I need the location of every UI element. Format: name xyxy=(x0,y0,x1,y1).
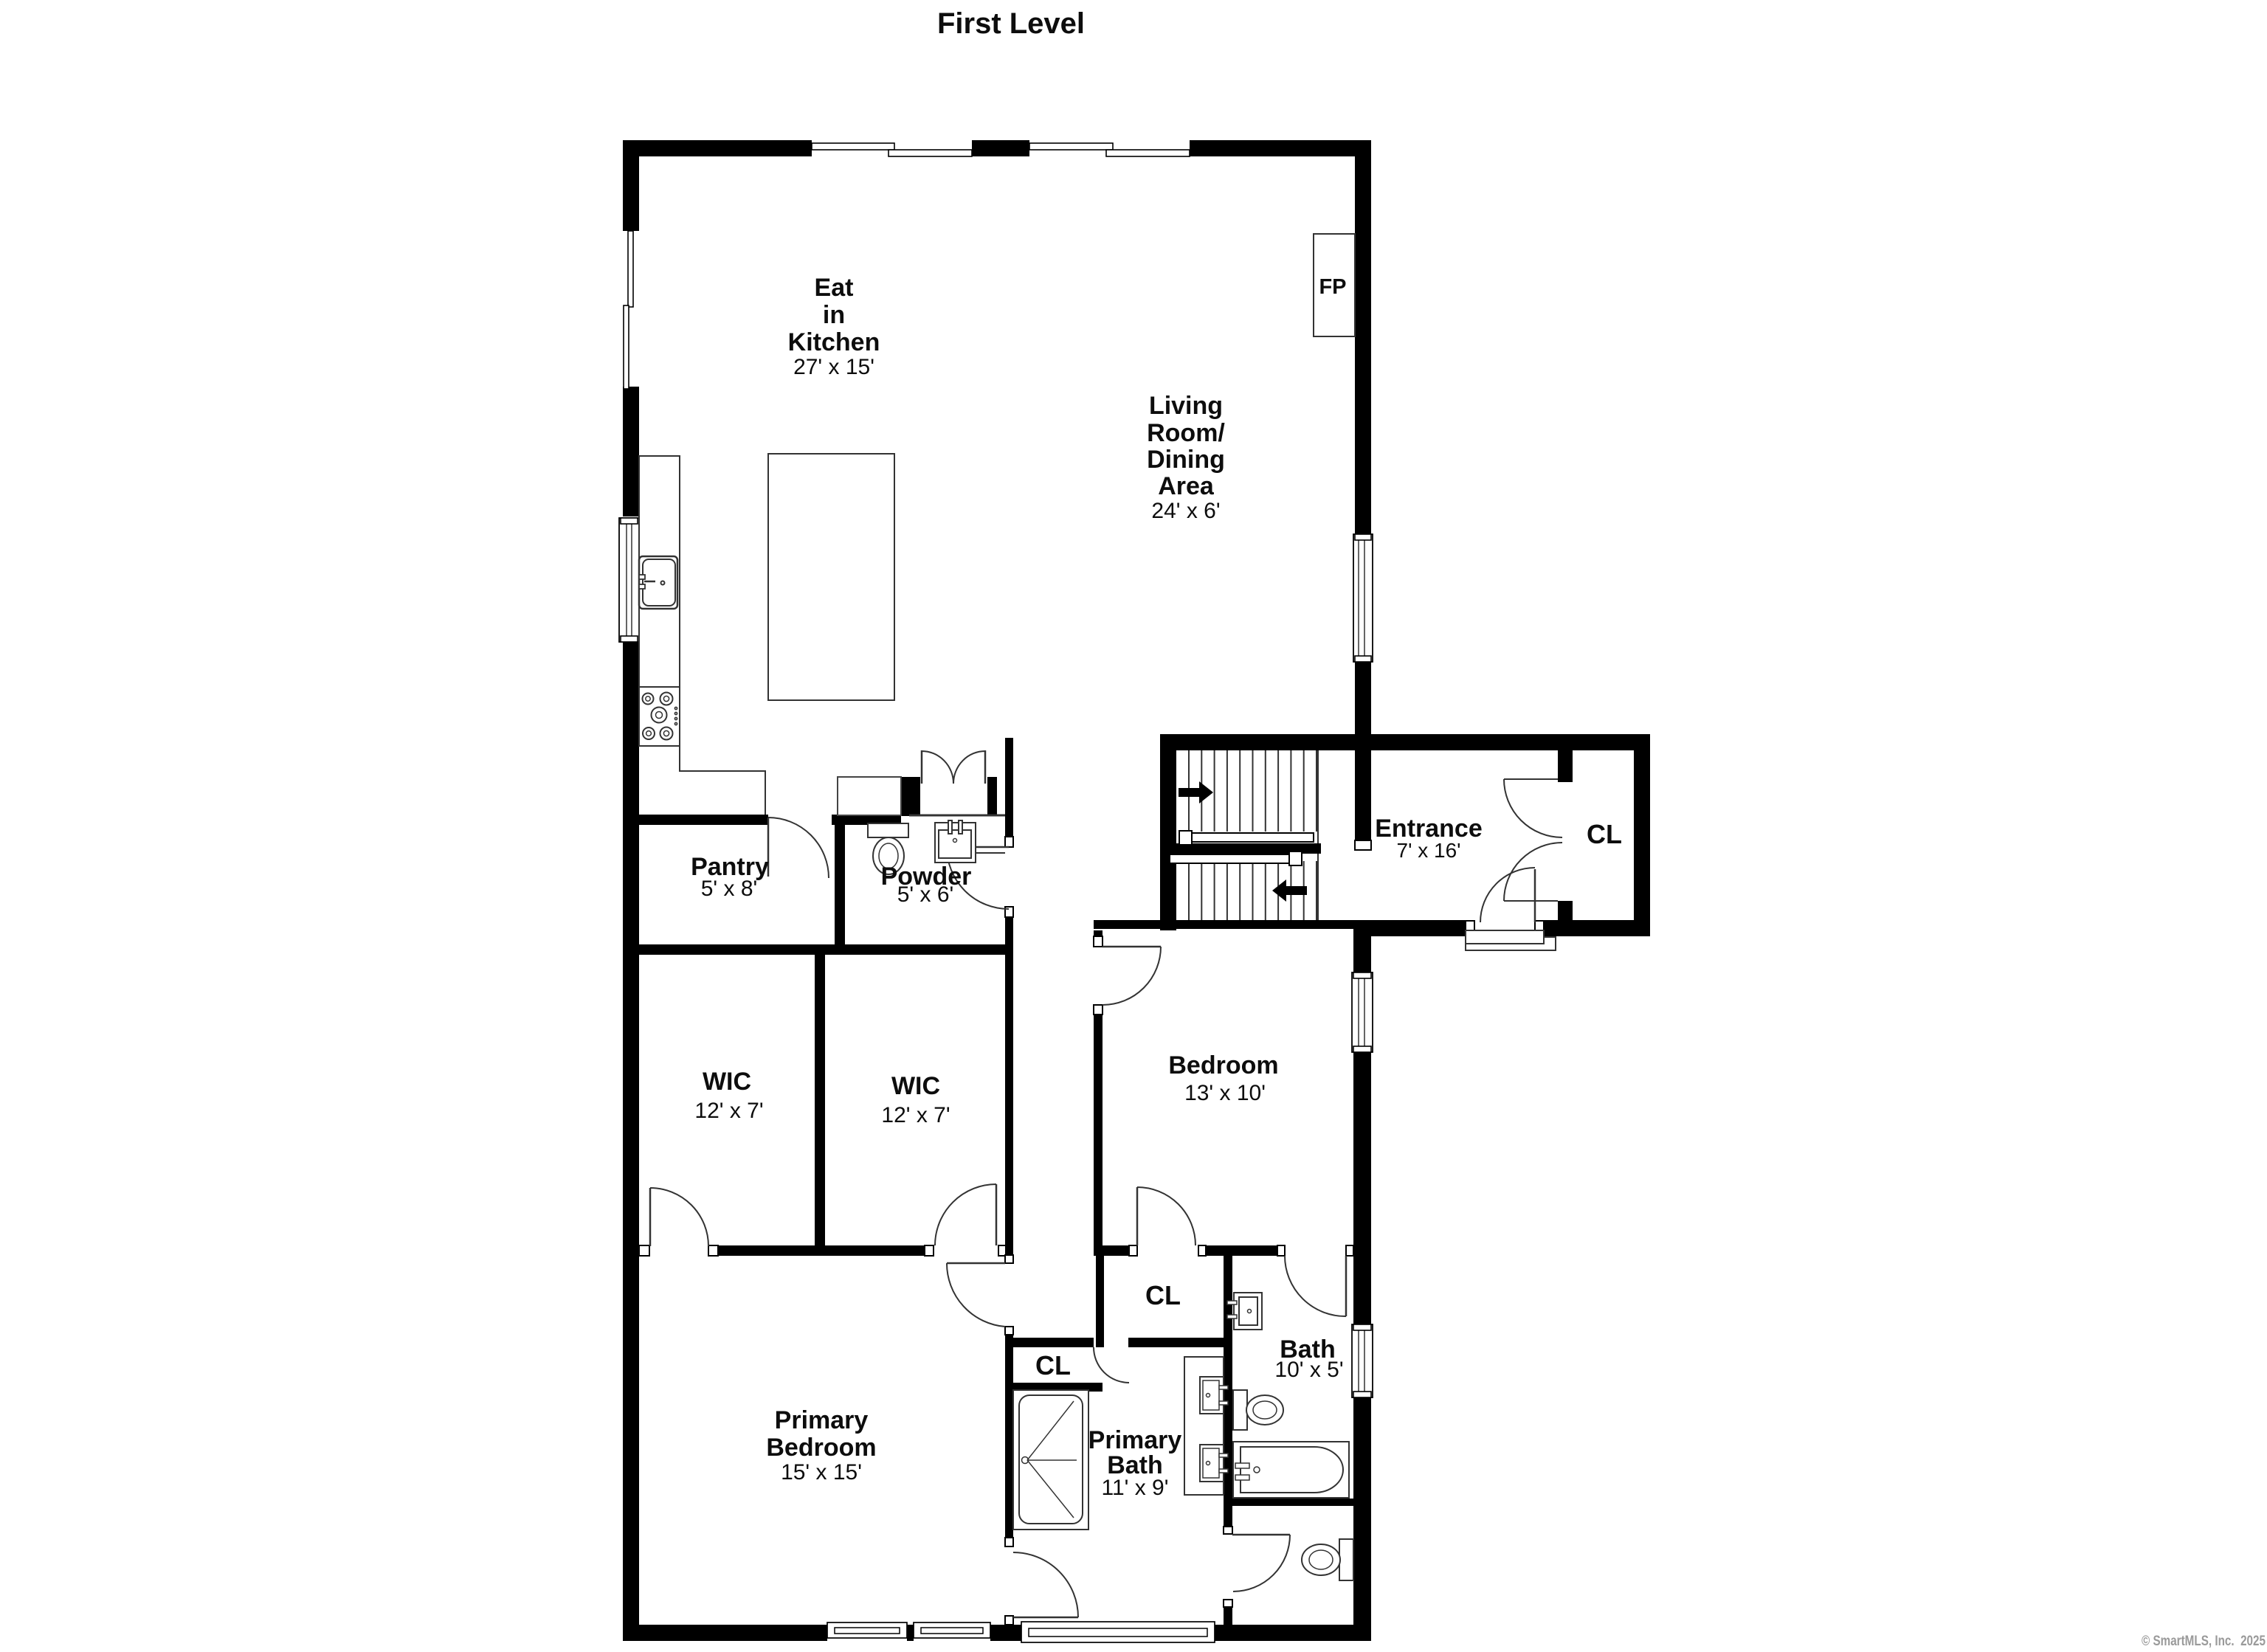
svg-text:24' x 6': 24' x 6' xyxy=(1151,499,1220,523)
svg-text:CL: CL xyxy=(1035,1350,1071,1380)
svg-text:5' x 8': 5' x 8' xyxy=(701,877,758,901)
svg-text:Living: Living xyxy=(1149,392,1223,420)
svg-text:Room/: Room/ xyxy=(1147,419,1225,447)
svg-text:10' x 5': 10' x 5' xyxy=(1274,1358,1343,1382)
svg-text:13' x 10': 13' x 10' xyxy=(1184,1081,1266,1105)
svg-text:CL: CL xyxy=(1587,819,1622,849)
svg-text:Area: Area xyxy=(1158,472,1215,500)
svg-text:7' x 16': 7' x 16' xyxy=(1397,839,1461,862)
svg-text:First Level: First Level xyxy=(937,7,1085,40)
svg-text:Primary: Primary xyxy=(1088,1426,1182,1454)
svg-text:12' x 7': 12' x 7' xyxy=(694,1099,763,1123)
svg-text:WIC: WIC xyxy=(703,1068,751,1096)
svg-text:27' x 15': 27' x 15' xyxy=(793,355,874,379)
svg-text:Bedroom: Bedroom xyxy=(1168,1051,1278,1079)
svg-text:© SmartMLS, Inc. 2025: © SmartMLS, Inc. 2025 xyxy=(2142,1634,2266,1648)
svg-text:5' x 6': 5' x 6' xyxy=(897,882,954,907)
svg-text:in: in xyxy=(823,301,845,329)
svg-text:Eat: Eat xyxy=(815,274,854,302)
svg-text:Primary: Primary xyxy=(775,1406,869,1434)
svg-text:Bedroom: Bedroom xyxy=(766,1434,876,1462)
svg-text:FP: FP xyxy=(1319,275,1346,299)
svg-text:12' x 7': 12' x 7' xyxy=(881,1103,950,1127)
svg-text:11' x 9': 11' x 9' xyxy=(1102,1476,1169,1500)
svg-text:15' x 15': 15' x 15' xyxy=(781,1460,862,1485)
svg-text:CL: CL xyxy=(1145,1280,1181,1310)
svg-text:Kitchen: Kitchen xyxy=(788,328,880,356)
svg-text:WIC: WIC xyxy=(891,1072,940,1100)
svg-text:Dining: Dining xyxy=(1147,446,1225,474)
